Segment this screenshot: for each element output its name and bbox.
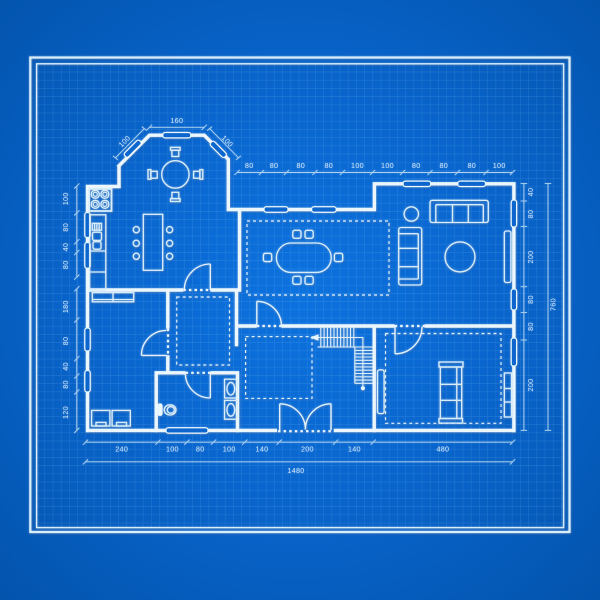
- svg-text:100: 100: [351, 161, 364, 170]
- svg-text:80: 80: [61, 223, 70, 232]
- svg-text:200: 200: [526, 251, 535, 264]
- svg-text:80: 80: [61, 380, 70, 389]
- svg-text:1480: 1480: [287, 466, 304, 475]
- svg-text:80: 80: [439, 161, 448, 170]
- svg-text:100: 100: [166, 444, 179, 453]
- svg-text:100: 100: [223, 444, 236, 453]
- svg-text:80: 80: [61, 337, 70, 346]
- svg-text:760: 760: [548, 298, 557, 311]
- svg-text:40: 40: [61, 243, 70, 252]
- svg-text:120: 120: [61, 406, 70, 419]
- svg-text:80: 80: [296, 161, 305, 170]
- svg-text:240: 240: [115, 444, 128, 453]
- svg-text:200: 200: [526, 379, 535, 392]
- svg-text:80: 80: [324, 161, 333, 170]
- svg-text:80: 80: [412, 161, 421, 170]
- svg-text:80: 80: [526, 295, 535, 304]
- svg-text:140: 140: [348, 444, 361, 453]
- svg-text:80: 80: [467, 161, 476, 170]
- svg-text:80: 80: [61, 260, 70, 269]
- svg-text:80: 80: [245, 161, 254, 170]
- svg-text:480: 480: [436, 444, 449, 453]
- svg-text:200: 200: [301, 444, 314, 453]
- svg-text:100: 100: [493, 161, 506, 170]
- svg-text:100: 100: [381, 161, 394, 170]
- svg-text:80: 80: [270, 161, 279, 170]
- svg-text:80: 80: [526, 322, 535, 331]
- svg-text:140: 140: [256, 444, 269, 453]
- svg-text:40: 40: [61, 362, 70, 371]
- svg-text:40: 40: [526, 188, 535, 197]
- svg-text:80: 80: [526, 210, 535, 219]
- svg-text:80: 80: [196, 444, 205, 453]
- svg-text:160: 160: [170, 116, 183, 125]
- svg-text:180: 180: [61, 300, 70, 313]
- svg-text:100: 100: [61, 192, 70, 205]
